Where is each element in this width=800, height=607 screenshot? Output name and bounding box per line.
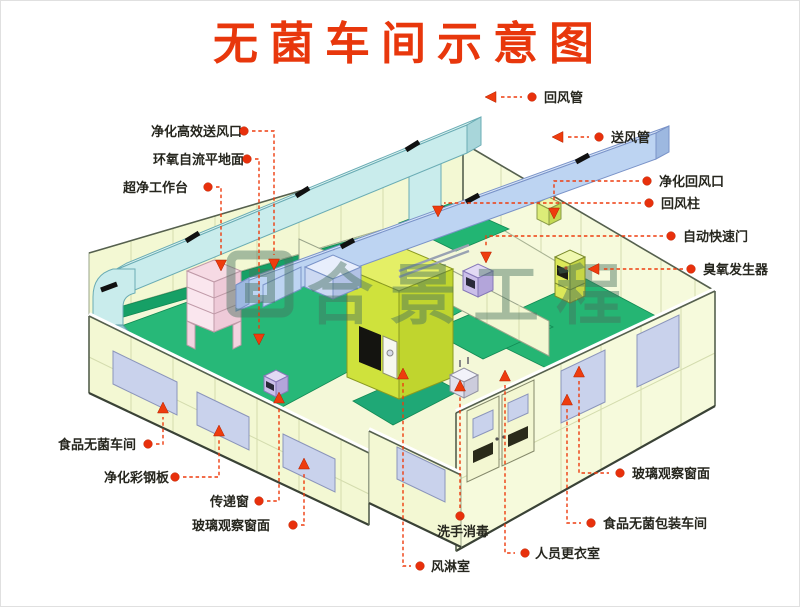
label-text: 玻璃观察窗面 — [192, 518, 270, 533]
label-return-air-duct: 回风管 — [485, 90, 583, 105]
label-text: 传递窗 — [209, 494, 249, 509]
label-text: 人员更衣室 — [535, 546, 600, 561]
label-text: 环氧自流平地面 — [153, 152, 244, 167]
leader-dot — [616, 469, 625, 478]
cleanroom-schematic-page: 合景工程 无菌车间示意图 回风管 送风管 净化回风口 回风柱 自动快速门 — [0, 0, 800, 607]
pass-through-window-box — [264, 370, 288, 397]
label-text: 臭氧发生器 — [703, 262, 769, 277]
label-text: 食品无菌车间 — [58, 437, 136, 452]
leader-dot — [171, 473, 180, 482]
label-text: 送风管 — [610, 130, 650, 145]
leader-dot — [255, 497, 264, 506]
leader-dot — [687, 265, 696, 274]
leader-dot — [587, 519, 596, 528]
leader-dot — [595, 133, 604, 142]
leader-arrow — [485, 92, 496, 103]
label-text: 玻璃观察窗面 — [632, 466, 710, 481]
label-text: 食品无菌包装车间 — [603, 516, 707, 531]
label-text: 超净工作台 — [123, 180, 188, 195]
leader-dot — [240, 127, 249, 136]
air-shower-door — [383, 336, 397, 379]
page-title: 无菌车间示意图 — [213, 18, 605, 69]
label-text: 回风管 — [544, 90, 583, 105]
leader-dot — [243, 155, 252, 164]
leader-dot — [204, 183, 213, 192]
leader-dot — [416, 562, 425, 571]
cleanroom-diagram: 合景工程 无菌车间示意图 回风管 送风管 净化回风口 回风柱 自动快速门 — [1, 1, 800, 607]
leader-dot — [144, 440, 153, 449]
leader-dot — [643, 177, 652, 186]
label-text: 洗手消毒 — [437, 524, 489, 539]
label-text: 净化彩钢板 — [104, 470, 170, 485]
leader-dot — [456, 512, 465, 521]
label-text: 风淋室 — [431, 559, 470, 574]
leader-dot — [289, 521, 298, 530]
leader-dot — [645, 199, 654, 208]
leader-dot — [667, 232, 676, 241]
leader-dot — [528, 93, 537, 102]
label-supply-air-duct: 送风管 — [552, 130, 650, 145]
label-text: 净化高效送风口 — [151, 124, 242, 139]
label-text: 回风柱 — [661, 196, 700, 211]
leader-arrow — [552, 132, 563, 143]
label-text: 自动快速门 — [683, 229, 748, 244]
leader-dot — [521, 549, 530, 558]
label-text: 净化回风口 — [659, 174, 724, 189]
